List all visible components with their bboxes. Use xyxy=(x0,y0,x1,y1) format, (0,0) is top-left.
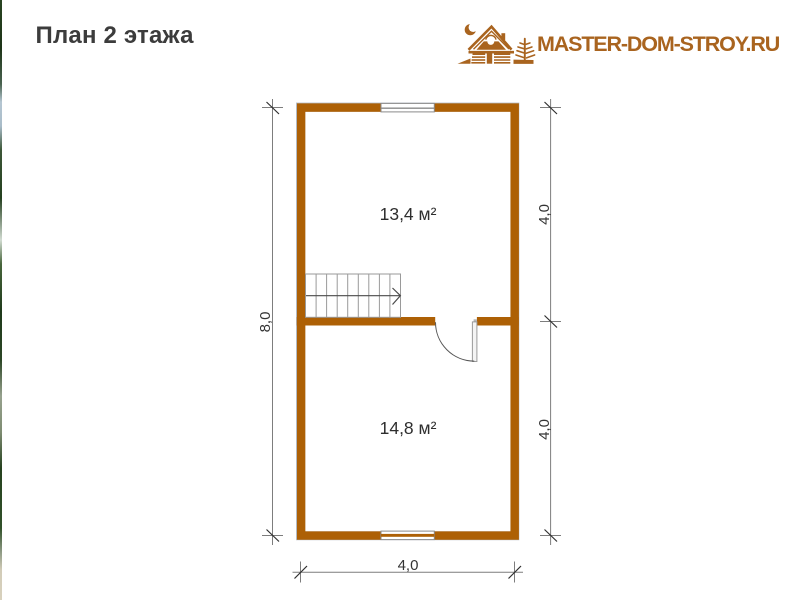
svg-text:13,4 м²: 13,4 м² xyxy=(380,204,437,224)
svg-text:4,0: 4,0 xyxy=(536,419,553,440)
svg-text:14,8 м²: 14,8 м² xyxy=(380,418,437,438)
svg-text:8,0: 8,0 xyxy=(257,312,274,333)
svg-text:4,0: 4,0 xyxy=(398,557,419,574)
svg-text:4,0: 4,0 xyxy=(536,204,553,225)
